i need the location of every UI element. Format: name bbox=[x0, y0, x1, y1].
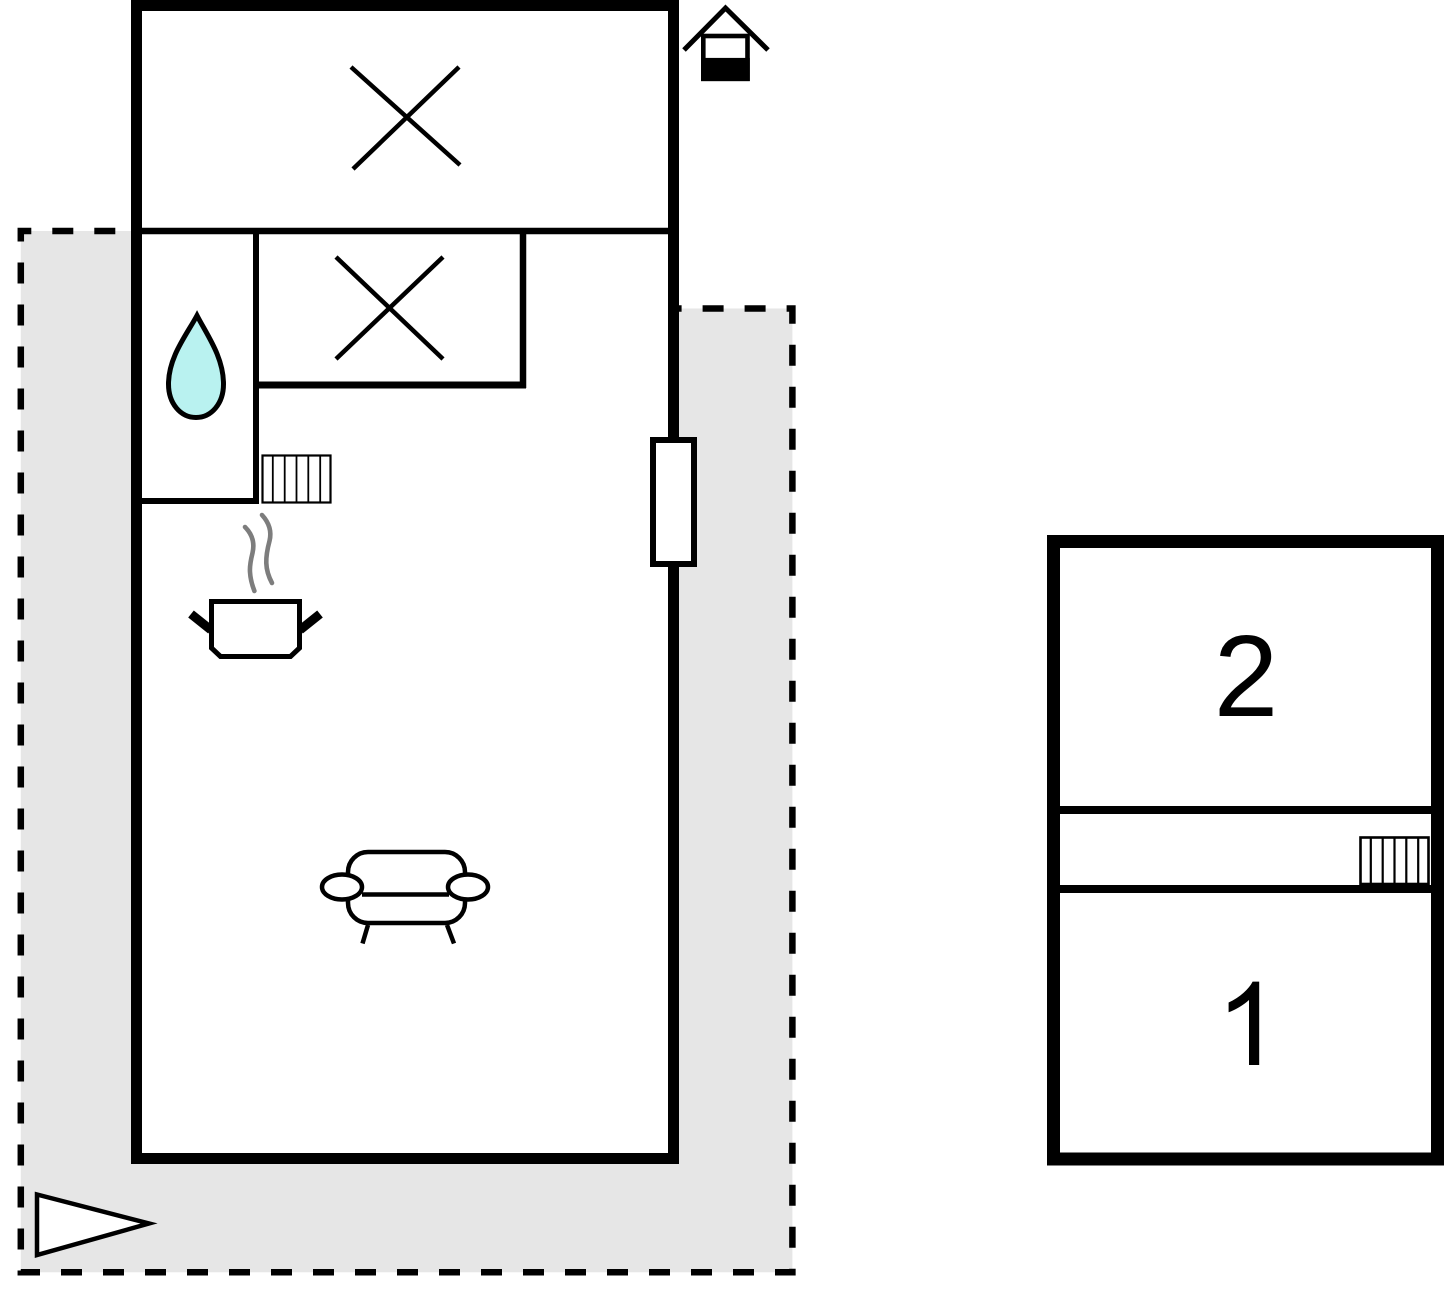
svg-text:2: 2 bbox=[1214, 611, 1279, 741]
